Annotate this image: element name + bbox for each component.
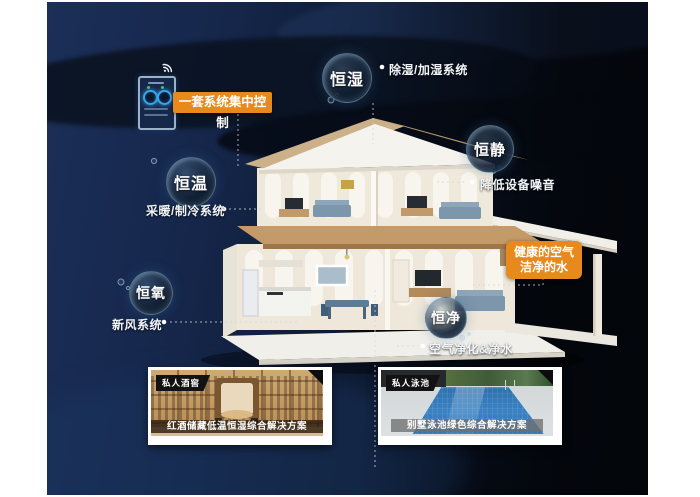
label-dehumidify-system: 除湿/加湿系统 [389, 61, 468, 78]
bubble-constant-oxygen: 恒氧 [129, 271, 173, 315]
label-air-water-purification: 空气净化&净水 [429, 340, 513, 357]
label-fresh-air-system: 新风系统 [112, 316, 162, 333]
photo-tag-pool: 私人泳池 [386, 375, 440, 391]
clean-water-line: 洁净的水 [512, 260, 576, 275]
bubble-constant-temperature: 恒温 [166, 157, 216, 207]
pool-ladder [505, 380, 515, 390]
photo-wine-cellar: 私人酒窖 红酒储藏低温恒湿综合解决方案 [148, 367, 332, 445]
healthy-air-water-box: 健康的空气 洁净的水 [506, 241, 582, 279]
healthy-air-line: 健康的空气 [512, 245, 576, 260]
photo-private-pool: 私人泳池 别墅泳池绿色综合解决方案 [378, 367, 562, 445]
photo-private-pool-image: 私人泳池 别墅泳池绿色综合解决方案 [381, 370, 553, 436]
corner-fold [308, 370, 323, 385]
corner-fold [538, 370, 553, 385]
infographic-canvas: 一套系统集中控制 健康的空气 洁净的水 恒湿 除湿/加湿系统 恒静 降低设备噪音… [0, 0, 700, 497]
status-led [147, 86, 150, 89]
photo-tag-wine: 私人酒窖 [156, 375, 210, 391]
humidity-knob [157, 90, 172, 105]
bubble-constant-humidity: 恒湿 [322, 53, 372, 103]
status-led [161, 86, 164, 89]
control-panel-device [138, 76, 176, 130]
temperature-knob [143, 90, 158, 105]
control-panel-row [144, 108, 168, 110]
wifi-icon [160, 57, 178, 75]
label-heating-cooling-system: 采暖/制冷系统 [146, 202, 225, 219]
label-noise-reduction: 降低设备噪音 [480, 176, 555, 193]
wine-cabinet-panel [221, 383, 253, 413]
bubble-constant-clean: 恒净 [425, 297, 467, 339]
bubble-constant-quiet: 恒静 [466, 125, 514, 173]
photo-wine-cellar-image: 私人酒窖 红酒储藏低温恒湿综合解决方案 [151, 370, 323, 436]
photo-caption-wine: 红酒储藏低温恒湿综合解决方案 [151, 420, 323, 433]
tasting-table [221, 410, 253, 419]
control-panel-title-bar [148, 82, 164, 84]
photo-caption-pool: 别墅泳池绿色综合解决方案 [391, 419, 543, 432]
pool-greenery [446, 370, 553, 386]
control-panel-row [144, 114, 168, 116]
central-control-label: 一套系统集中控制 [173, 92, 272, 113]
